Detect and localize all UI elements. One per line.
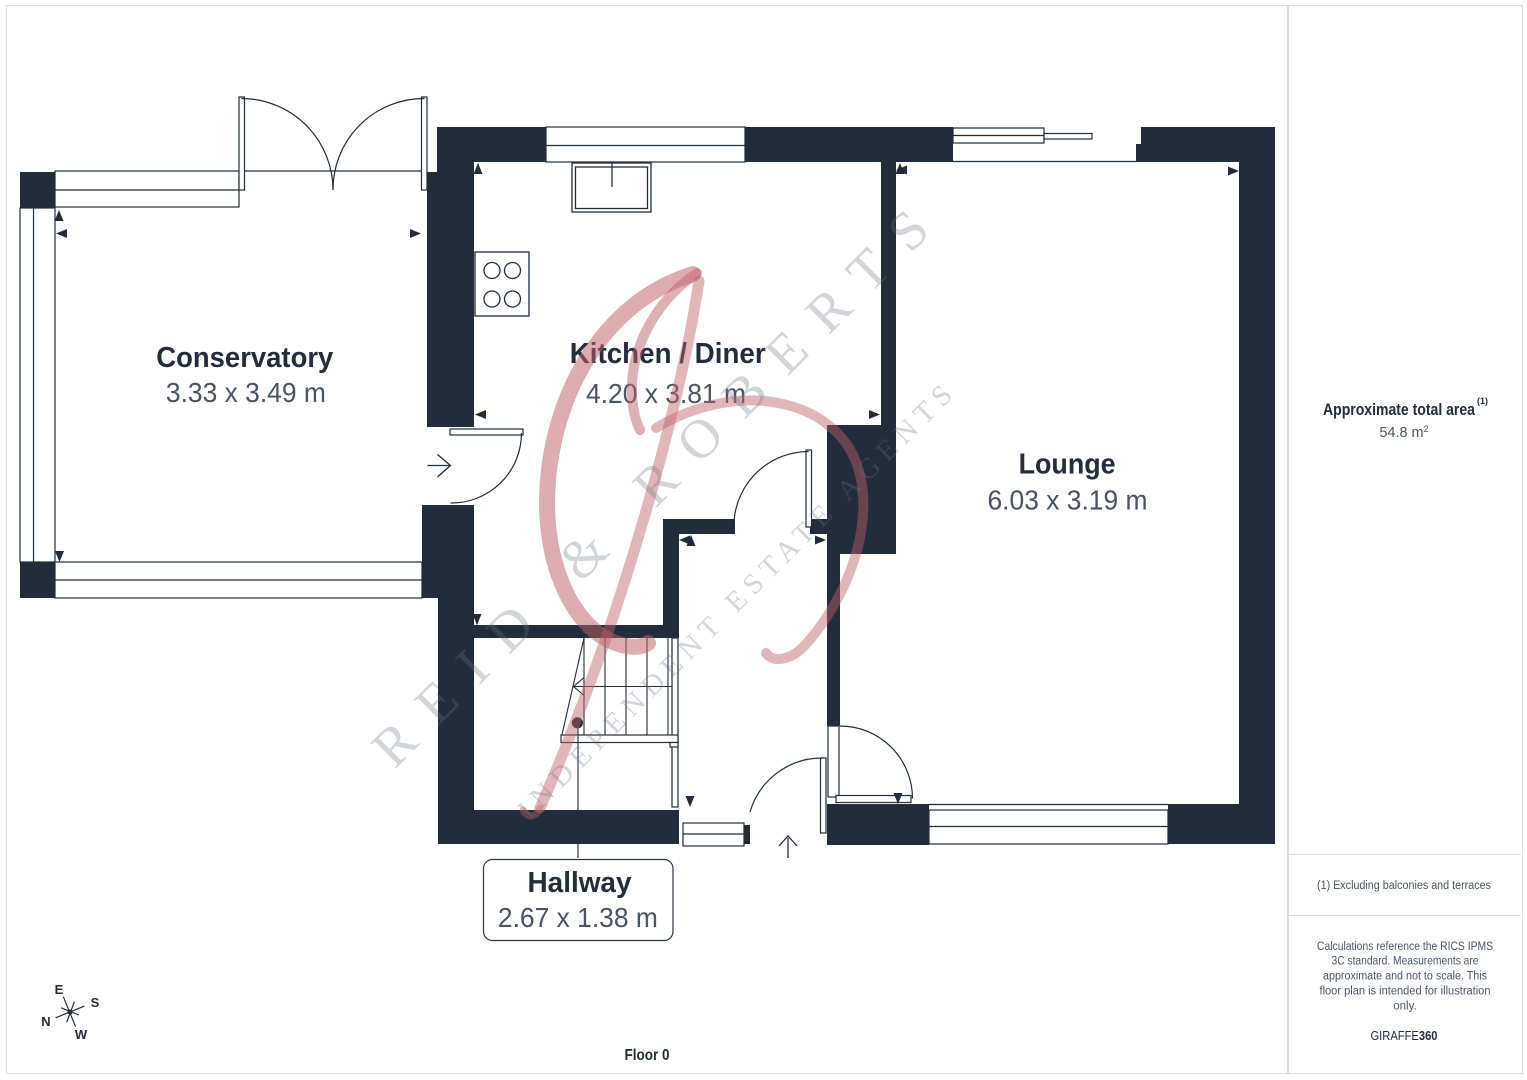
svg-text:N: N <box>41 1014 50 1029</box>
svg-text:Floor 0: Floor 0 <box>625 1047 670 1064</box>
svg-text:only.: only. <box>1393 1000 1416 1012</box>
svg-text:floor plan is intended for ill: floor plan is intended for illustration <box>1320 985 1491 997</box>
svg-text:3.33 x 3.49 m: 3.33 x 3.49 m <box>166 377 326 408</box>
svg-text:W: W <box>75 1027 88 1042</box>
svg-text:Calculations reference the RIC: Calculations reference the RICS IPMS <box>1317 941 1493 953</box>
svg-text:GIRAFFE360: GIRAFFE360 <box>1371 1028 1438 1043</box>
svg-text:3C standard. Measurements are: 3C standard. Measurements are <box>1332 956 1479 968</box>
svg-text:6.03 x 3.19 m: 6.03 x 3.19 m <box>988 485 1148 516</box>
svg-text:Lounge: Lounge <box>1019 449 1116 481</box>
svg-text:Approximate total area: Approximate total area <box>1323 400 1475 419</box>
svg-text:approximate and not to scale.: approximate and not to scale. This <box>1323 970 1487 982</box>
svg-text:54.8 m2: 54.8 m2 <box>1379 424 1428 441</box>
svg-text:S: S <box>91 995 100 1010</box>
svg-text:(1) Excluding balconies and te: (1) Excluding balconies and terraces <box>1317 880 1491 892</box>
svg-text:2.67 x 1.38 m: 2.67 x 1.38 m <box>498 902 658 933</box>
svg-text:Conservatory: Conservatory <box>156 342 333 374</box>
svg-text:Hallway: Hallway <box>528 867 632 899</box>
svg-text:E: E <box>55 982 64 997</box>
svg-text:(1): (1) <box>1477 396 1488 406</box>
